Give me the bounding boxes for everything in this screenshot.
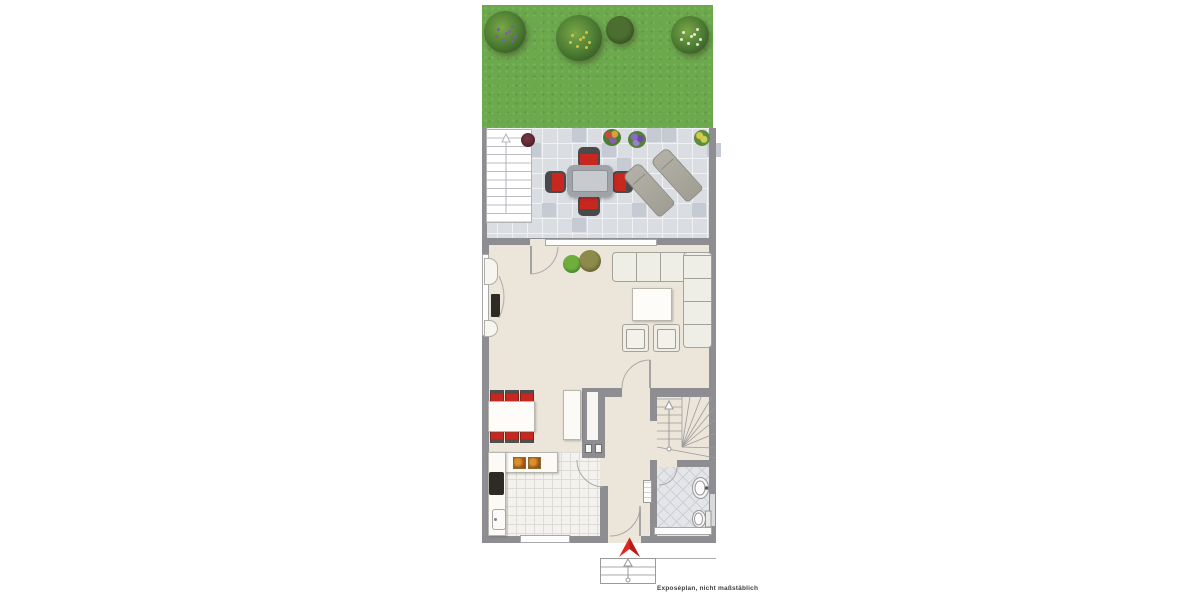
watermark-strip <box>710 494 715 526</box>
chimney-flue <box>595 444 602 453</box>
flower-dots <box>579 38 582 41</box>
terrace-tile-dark <box>542 203 556 217</box>
flower-dots <box>505 32 508 35</box>
garden-lawn <box>482 5 713 128</box>
garden-bush-white <box>671 16 709 54</box>
terrace-chair-south <box>578 195 600 216</box>
coffee-table <box>632 288 672 321</box>
wall-mid-left <box>605 388 622 397</box>
armchair <box>622 324 649 352</box>
planter-pot <box>521 133 535 147</box>
garden-bush-dark <box>606 16 634 44</box>
front-door-opening <box>608 536 641 543</box>
kitchen-window <box>520 535 570 543</box>
tv-screen <box>491 294 500 317</box>
terrace-tile-dark <box>692 203 706 217</box>
entrance-steps <box>600 558 656 584</box>
garden-bush-purple <box>484 11 526 53</box>
cooktop <box>489 472 504 495</box>
wall-stair-stub <box>650 397 657 421</box>
kitchen-sink <box>492 509 506 530</box>
flower-dots <box>690 35 693 38</box>
boundary-line <box>656 558 716 559</box>
floorplan-page: Exposéplan, nicht maßstäblich <box>0 0 1200 600</box>
terrace <box>482 128 716 240</box>
wall-bath-top <box>677 460 716 467</box>
sideboard <box>563 390 581 440</box>
terrace-tile-dark <box>572 128 586 142</box>
chimney-block <box>582 388 605 458</box>
terrace-tile-dark <box>647 128 661 142</box>
radiator <box>643 480 652 503</box>
wall-kitchen-hall <box>600 486 608 536</box>
bathroom-window <box>654 527 712 535</box>
terrace-window-band <box>545 239 657 246</box>
chimney-flue <box>585 444 592 453</box>
garden-bush-yellow <box>556 15 602 61</box>
media-unit-top <box>484 258 498 285</box>
terrace-tile-dark <box>572 218 586 232</box>
terrace-tile-dark <box>662 128 676 142</box>
wall-mid-right <box>650 388 716 397</box>
bathroom-floor-tiles <box>657 467 709 528</box>
chimney-niche <box>587 392 598 440</box>
plan-caption: Exposéplan, nicht maßstäblich <box>657 585 767 592</box>
corner-sofa-right <box>683 252 712 348</box>
dining-table <box>488 401 535 432</box>
floorplan <box>480 0 720 600</box>
planter-plant-green <box>694 130 710 146</box>
terrace-wall-right <box>709 128 716 240</box>
planter-flowers-purple <box>628 131 646 148</box>
terrace-chair-west <box>545 171 566 193</box>
cutting-board <box>513 457 526 469</box>
planter-flowers-mixed <box>603 129 621 146</box>
terrace-table <box>567 165 613 197</box>
terrace-tile-dark <box>632 203 646 217</box>
cutting-board <box>528 457 541 469</box>
living-plant-olive <box>579 250 601 272</box>
armchair <box>653 324 680 352</box>
terrace-door-opening <box>530 239 545 246</box>
